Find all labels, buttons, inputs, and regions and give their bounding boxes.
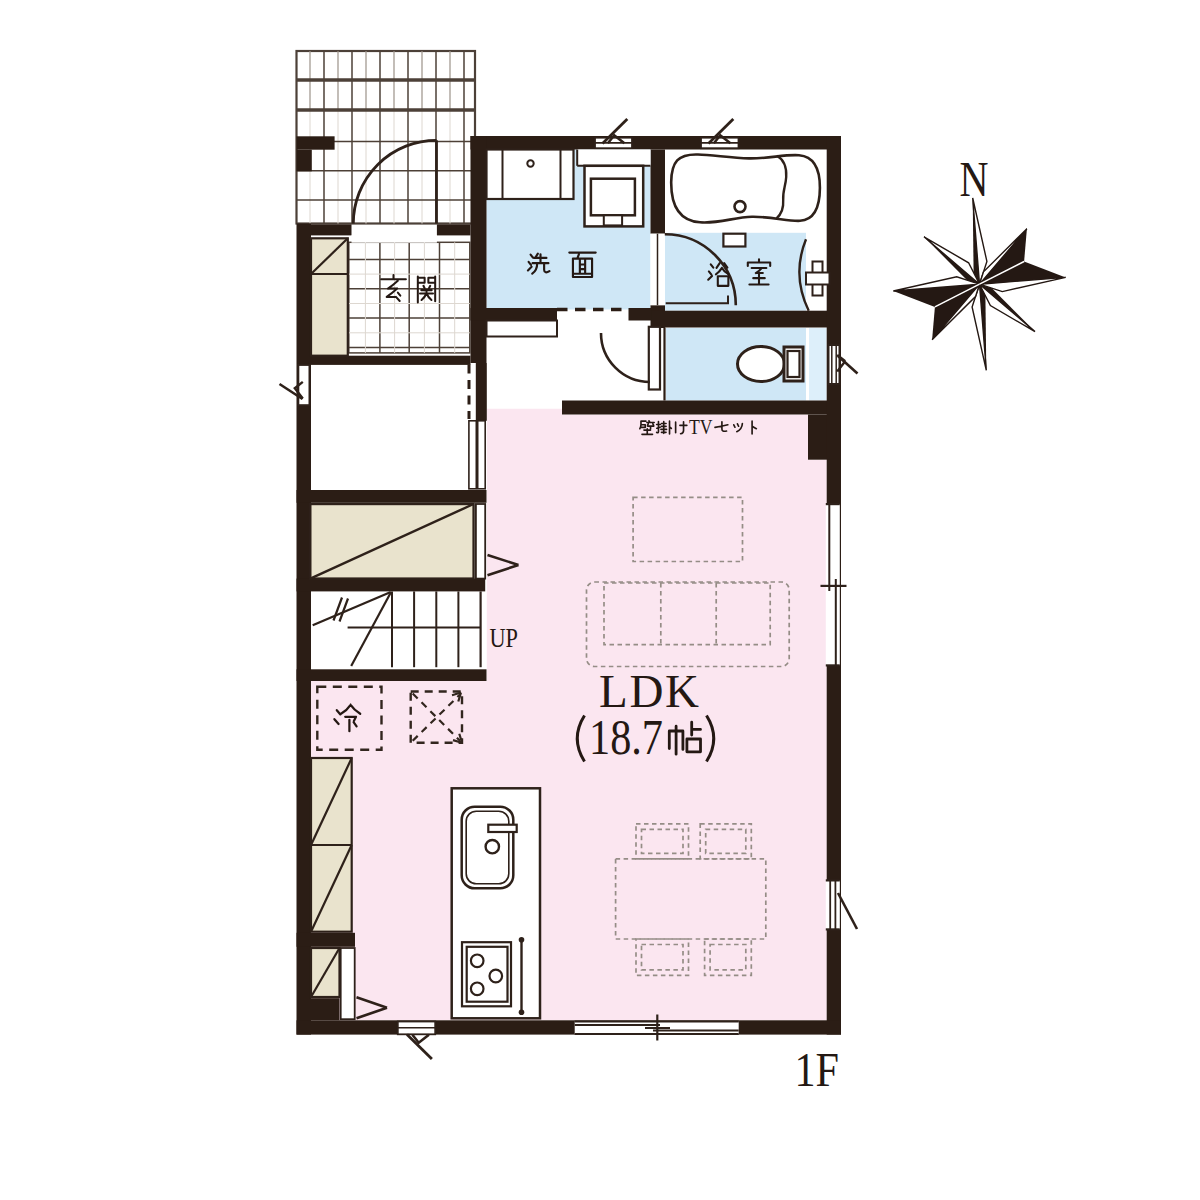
svg-text:N: N bbox=[960, 151, 989, 207]
svg-text:TV: TV bbox=[689, 414, 713, 439]
svg-text:UP: UP bbox=[490, 622, 519, 653]
svg-text:18.7: 18.7 bbox=[589, 709, 663, 765]
svg-text:1F: 1F bbox=[795, 1043, 840, 1096]
